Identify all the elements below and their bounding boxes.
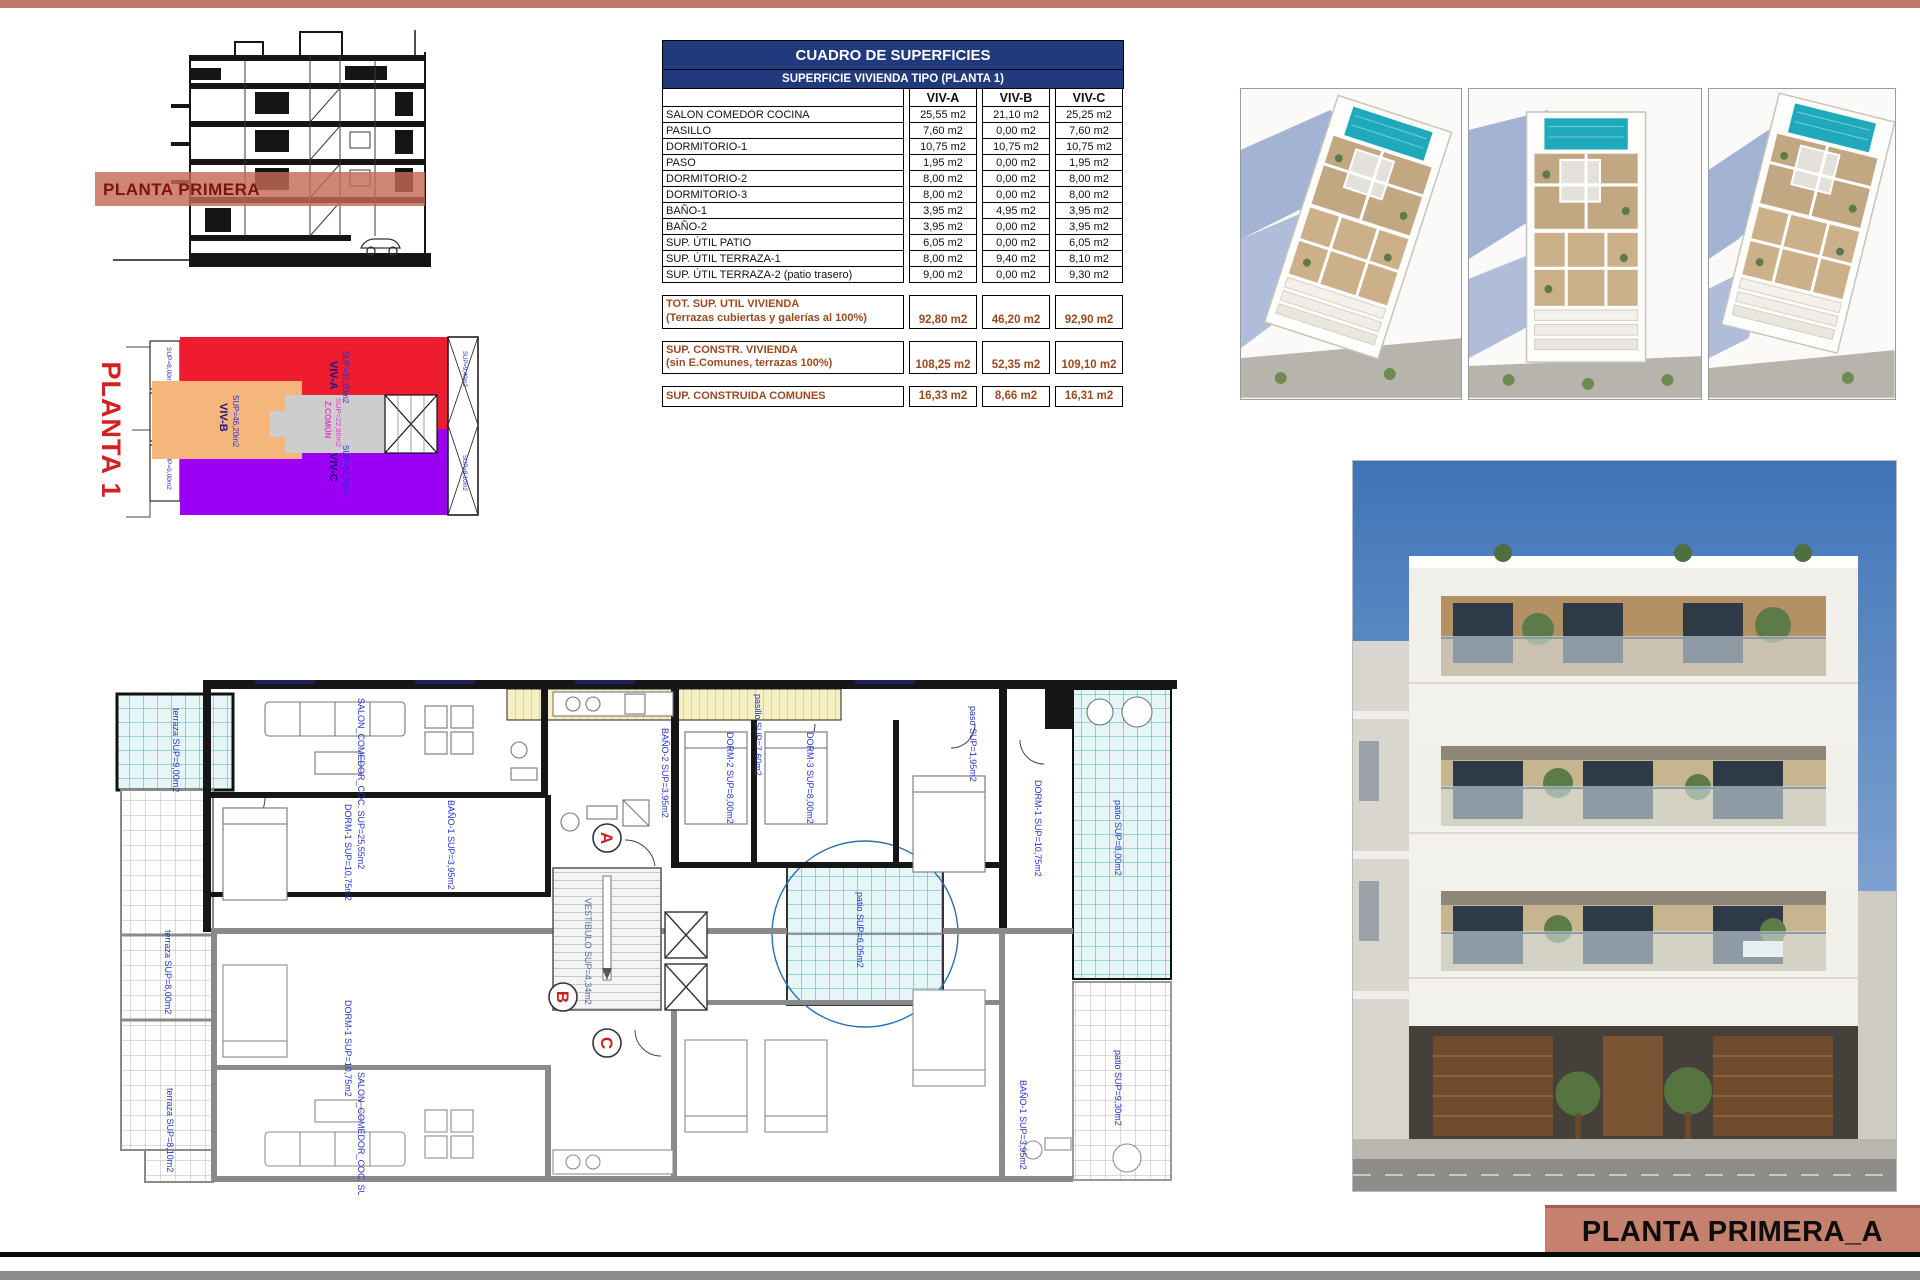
svg-text:C: C: [597, 1037, 616, 1049]
row-label: SALON COMEDOR COCINA: [662, 106, 904, 123]
table-header-row: VIV-A VIV-B VIV-C: [662, 88, 1124, 107]
table-row: BAÑO-23,95 m20,00 m23,95 m2: [662, 218, 1124, 235]
zone-sup-viv-a: SUP=92,80m2: [341, 351, 350, 404]
table-row: DORMITORIO-28,00 m20,00 m28,00 m2: [662, 170, 1124, 187]
planta-primera-label: PLANTA PRIMERA: [103, 180, 260, 199]
row-value: 8,00 m2: [909, 170, 977, 187]
summary-constr-vivienda: SUP. CONSTR. VIVIENDA (sin E.Comunes, te…: [662, 341, 1124, 375]
stair-core-glyph: [385, 395, 437, 453]
row-label: SUP. ÚTIL PATIO: [662, 234, 904, 251]
room-label: terraza SUP=8,10m2: [165, 1088, 175, 1172]
building-section-drawing: PLANTA PRIMERA: [95, 22, 465, 287]
table-row: BAÑO-13,95 m24,95 m23,95 m2: [662, 202, 1124, 219]
room-label: BAÑO-1 SUP=3,95m2: [446, 800, 456, 890]
row-value: 25,55 m2: [909, 106, 977, 123]
row-value: 9,30 m2: [1055, 266, 1123, 283]
row-value: 9,40 m2: [982, 250, 1050, 267]
zone-label-viv-a: VIV-A: [327, 361, 339, 390]
table-row: DORMITORIO-38,00 m20,00 m28,00 m2: [662, 186, 1124, 203]
header-empty: [662, 88, 904, 107]
row-value: 8,00 m2: [909, 186, 977, 203]
room-label: SALON_COMEDOR_COC. SUP=25,25m2: [356, 1072, 366, 1195]
table-row: PASILLO7,60 m20,00 m27,60 m2: [662, 122, 1124, 139]
row-value: 21,10 m2: [982, 106, 1050, 123]
row-label: PASO: [662, 154, 904, 171]
room-label: terraza SUP=8,00m2: [163, 930, 173, 1014]
row-value: 10,75 m2: [909, 138, 977, 155]
zone-label-viv-c: VIV-C: [327, 453, 339, 482]
room-label: BAÑO-1 SUP=3,95m2: [1018, 1080, 1028, 1170]
floor-plan: A B C terraza SUP=9,00m2 terraza SUP=8,0…: [115, 680, 1195, 1195]
summary-label: SUP. CONSTR. VIVIENDA (sin E.Comunes, te…: [662, 341, 904, 375]
room-label: VESTIBULO SUP=4,34m2: [583, 898, 593, 1005]
row-value: 0,00 m2: [982, 234, 1050, 251]
summary-constr-comunes: SUP. CONSTRUIDA COMUNES 16,33 m2 8,66 m2…: [662, 386, 1124, 407]
row-value: 1,95 m2: [1055, 154, 1123, 171]
row-value: 10,75 m2: [1055, 138, 1123, 155]
row-label: SUP. ÚTIL TERRAZA-2 (patio trasero): [662, 266, 904, 283]
row-value: 3,95 m2: [909, 218, 977, 235]
summary-value: 92,80 m2: [909, 295, 977, 329]
row-value: 3,95 m2: [1055, 202, 1123, 219]
room-label: terraza SUP=9,00m2: [171, 708, 181, 792]
facade-render: [1352, 460, 1897, 1192]
summary-total-util: TOT. SUP. UTIL VIVIENDA (Terrazas cubier…: [662, 295, 1124, 329]
room-label: SALON_COMEDOR_COC. SUP=25,55m2: [356, 698, 366, 869]
summary-value: 46,20 m2: [982, 295, 1050, 329]
row-value: 0,00 m2: [982, 218, 1050, 235]
row-value: 9,00 m2: [909, 266, 977, 283]
row-value: 25,25 m2: [1055, 106, 1123, 123]
unit-marker-a[interactable]: A: [593, 824, 621, 852]
row-label: BAÑO-1: [662, 202, 904, 219]
room-label: DORM-1 SUP=10,75m2: [1033, 780, 1043, 877]
row-label: DORMITORIO-2: [662, 170, 904, 187]
room-label: DORM-2 SUP=8,00m2: [725, 732, 735, 824]
bottom-rule: [0, 1252, 1920, 1257]
aerial-render-1: [1240, 88, 1462, 400]
summary-value: 8,66 m2: [982, 386, 1050, 407]
surfaces-table: CUADRO DE SUPERFICIES SUPERFICIE VIVIEND…: [662, 40, 1124, 407]
zone-sup-viv-c: SUP=92,90m2: [341, 445, 350, 498]
room-label: pasillo SUP=7,60m2: [753, 694, 763, 776]
aerial-render-2: [1468, 88, 1702, 400]
summary-value: 109,10 m2: [1055, 341, 1123, 375]
zone-sup-viv-b: SUP=46,20m2: [231, 395, 240, 448]
zone-label-comun: Z.COMÚN: [323, 401, 332, 439]
column-header: VIV-B: [982, 88, 1050, 107]
bottom-strip: [0, 1271, 1920, 1280]
row-label: SUP. ÚTIL TERRAZA-1: [662, 250, 904, 267]
row-value: 0,00 m2: [982, 170, 1050, 187]
row-label: DORMITORIO-3: [662, 186, 904, 203]
column-header: VIV-A: [909, 88, 977, 107]
room-label: paso SUP=1,95m2: [968, 706, 978, 782]
svg-text:A: A: [597, 832, 616, 844]
key-plan: PLANTA 1 SUP=8,00m2 SUP=6,05m2 SUP=9,00m…: [80, 325, 492, 540]
terrace-label: SUP=8,10m2: [461, 455, 467, 492]
summary-value: 16,33 m2: [909, 386, 977, 407]
row-label: DORMITORIO-1: [662, 138, 904, 155]
summary-label: TOT. SUP. UTIL VIVIENDA (Terrazas cubier…: [662, 295, 904, 329]
planta-primera-band: PLANTA PRIMERA: [95, 172, 425, 206]
summary-label: SUP. CONSTRUIDA COMUNES: [662, 386, 904, 407]
row-value: 6,05 m2: [909, 234, 977, 251]
table-title: CUADRO DE SUPERFICIES: [662, 40, 1124, 70]
row-label: PASILLO: [662, 122, 904, 139]
terrace-label: SUP=9,40m2: [461, 351, 467, 388]
zone-sup-comun: SUP=22,86m2: [334, 398, 343, 447]
summary-value: 16,31 m2: [1055, 386, 1123, 407]
aerial-render-3: [1708, 88, 1896, 400]
table-subtitle: SUPERFICIE VIVIENDA TIPO (PLANTA 1): [662, 70, 1124, 89]
row-value: 1,95 m2: [909, 154, 977, 171]
table-row: SUP. ÚTIL TERRAZA-18,00 m29,40 m28,10 m2: [662, 250, 1124, 267]
sheet-title: PLANTA PRIMERA_A: [1582, 1216, 1883, 1249]
sheet-title-banner: PLANTA PRIMERA_A: [1545, 1205, 1920, 1256]
top-accent-bar: [0, 0, 1920, 8]
table-row: SALON COMEDOR COCINA25,55 m221,10 m225,2…: [662, 106, 1124, 123]
room-label: DORM-1 SUP=10,75m2: [343, 804, 353, 901]
car-glyph: [361, 239, 400, 255]
row-value: 8,10 m2: [1055, 250, 1123, 267]
row-value: 7,60 m2: [1055, 122, 1123, 139]
room-label: patio SUP=6,05m2: [855, 892, 865, 968]
unit-marker-b[interactable]: B: [549, 983, 577, 1011]
room-label: patio SUP=9,30m2: [1113, 1050, 1123, 1126]
svg-text:B: B: [553, 991, 572, 1003]
row-value: 8,00 m2: [1055, 170, 1123, 187]
column-header: VIV-C: [1055, 88, 1123, 107]
summary-value: 92,90 m2: [1055, 295, 1123, 329]
row-value: 0,00 m2: [982, 154, 1050, 171]
table-row: SUP. ÚTIL TERRAZA-2 (patio trasero)9,00 …: [662, 266, 1124, 283]
aerial-renders: [1240, 88, 1896, 400]
table-row: DORMITORIO-110,75 m210,75 m210,75 m2: [662, 138, 1124, 155]
key-plan-right-terrace: SUP=9,40m2 SUP=8,10m2: [448, 337, 478, 515]
row-value: 4,95 m2: [982, 202, 1050, 219]
row-value: 7,60 m2: [909, 122, 977, 139]
room-label: DORM-1 SUP=10,75m2: [343, 1000, 353, 1097]
table-row: SUP. ÚTIL PATIO6,05 m20,00 m26,05 m2: [662, 234, 1124, 251]
row-value: 3,95 m2: [1055, 218, 1123, 235]
room-label: DORM-3 SUP=8,00m2: [805, 732, 815, 824]
summary-value: 108,25 m2: [909, 341, 977, 375]
row-value: 0,00 m2: [982, 266, 1050, 283]
table-row: PASO1,95 m20,00 m21,95 m2: [662, 154, 1124, 171]
row-value: 10,75 m2: [982, 138, 1050, 155]
unit-marker-c[interactable]: C: [593, 1029, 621, 1057]
row-value: 3,95 m2: [909, 202, 977, 219]
row-value: 0,00 m2: [982, 122, 1050, 139]
row-value: 0,00 m2: [982, 186, 1050, 203]
room-label: patio SUP=8,00m2: [1113, 800, 1123, 876]
row-value: 6,05 m2: [1055, 234, 1123, 251]
row-value: 8,00 m2: [1055, 186, 1123, 203]
row-label: BAÑO-2: [662, 218, 904, 235]
room-label: BAÑO-2 SUP=3,95m2: [660, 728, 670, 818]
side-tab-label: SUP=8,00m2: [165, 347, 172, 386]
elevator-glyph: [665, 912, 707, 1010]
table-body: SALON COMEDOR COCINA25,55 m221,10 m225,2…: [662, 106, 1124, 283]
summary-value: 52,35 m2: [982, 341, 1050, 375]
plan-sheet: PLANTA PRIMERA PLANTA 1 SUP=8,00m2 SUP=6…: [0, 0, 1920, 1280]
row-value: 8,00 m2: [909, 250, 977, 267]
key-plan-title: PLANTA 1: [96, 361, 126, 498]
zone-label-viv-b: VIV-B: [217, 403, 229, 432]
